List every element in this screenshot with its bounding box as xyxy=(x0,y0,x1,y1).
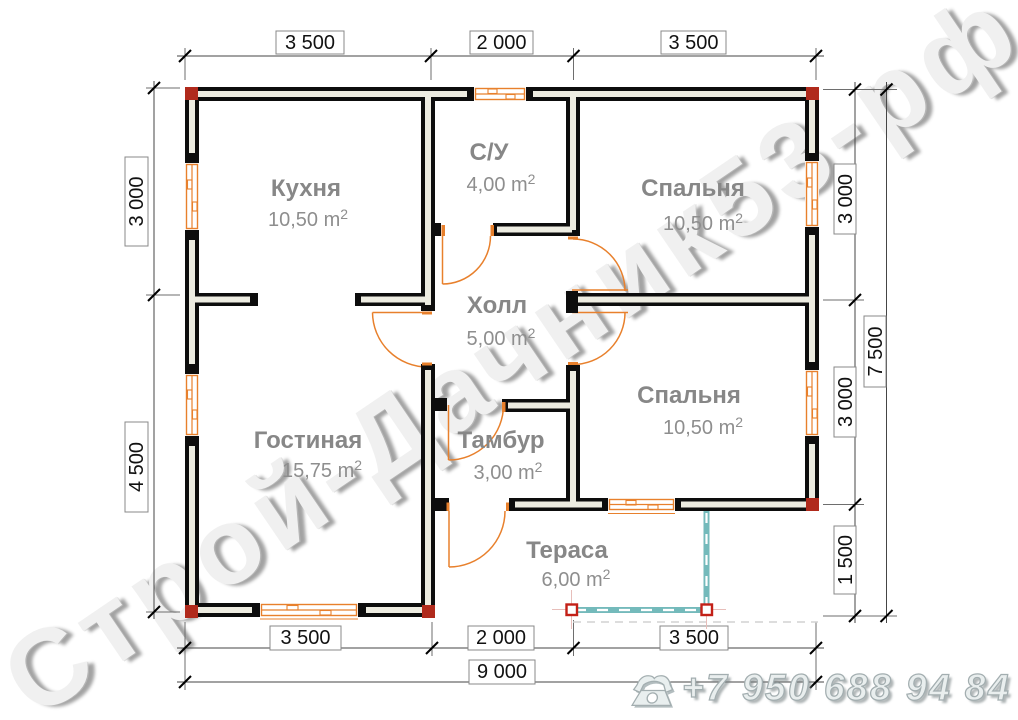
svg-text:10,50 m2: 10,50 m2 xyxy=(268,206,348,231)
svg-text:3 000: 3 000 xyxy=(835,377,857,427)
svg-text:Гостиная: Гостиная xyxy=(254,427,362,454)
svg-text:3 500: 3 500 xyxy=(669,627,719,649)
svg-text:Спальня: Спальня xyxy=(641,175,745,202)
svg-text:3 000: 3 000 xyxy=(126,176,148,226)
svg-text:10,50 m2: 10,50 m2 xyxy=(663,414,743,439)
svg-text:Спальня: Спальня xyxy=(637,382,741,409)
svg-text:4,00 m2: 4,00 m2 xyxy=(467,171,536,196)
svg-text:3 500: 3 500 xyxy=(285,32,335,54)
svg-text:Холл: Холл xyxy=(467,292,527,319)
svg-text:15,75 m2: 15,75 m2 xyxy=(282,457,362,482)
svg-text:9 000: 9 000 xyxy=(477,661,527,683)
svg-text:2 000: 2 000 xyxy=(476,627,526,649)
svg-text:3 500: 3 500 xyxy=(668,32,718,54)
svg-text:1 500: 1 500 xyxy=(835,535,857,585)
svg-text:5,00 m2: 5,00 m2 xyxy=(467,325,536,350)
svg-text:Тераса: Тераса xyxy=(526,537,608,564)
svg-text:7 500: 7 500 xyxy=(865,326,887,376)
svg-text:С/У: С/У xyxy=(470,139,510,166)
svg-text:3 000: 3 000 xyxy=(835,174,857,224)
svg-text:2 000: 2 000 xyxy=(476,32,526,54)
svg-text:4 500: 4 500 xyxy=(126,442,148,492)
svg-text:Кухня: Кухня xyxy=(271,175,341,202)
svg-text:6,00 m2: 6,00 m2 xyxy=(542,566,611,591)
svg-text:3,00 m2: 3,00 m2 xyxy=(474,459,543,484)
svg-text:Тамбур: Тамбур xyxy=(457,427,544,454)
svg-text:3 500: 3 500 xyxy=(280,627,330,649)
svg-text:10,50 m2: 10,50 m2 xyxy=(663,210,743,235)
